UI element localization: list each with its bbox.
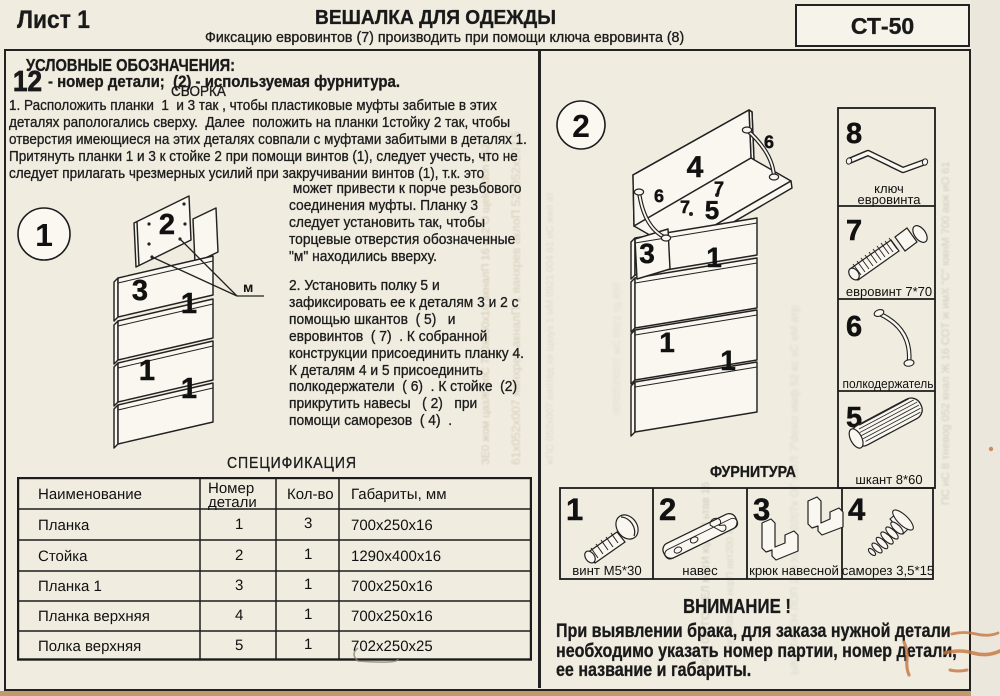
svg-text:Габариты, мм: Габариты, мм: [351, 486, 447, 503]
svg-text:Планка верхняя: Планка верхняя: [38, 608, 150, 625]
svg-text:1: 1: [659, 327, 675, 358]
svg-text:навес: навес: [682, 563, 718, 578]
svg-text:1: 1: [304, 546, 312, 563]
svg-text:5: 5: [705, 195, 719, 225]
svg-text:1: 1: [566, 492, 583, 527]
svg-text:м: м: [243, 279, 253, 295]
svg-text:Стойка: Стойка: [38, 548, 88, 565]
svg-text:евровинт 7*70: евровинт 7*70: [846, 284, 932, 299]
svg-text:1: 1: [139, 355, 155, 387]
svg-text:700х250х16: 700х250х16: [351, 608, 433, 625]
svg-text:1: 1: [235, 516, 243, 533]
svg-text:3: 3: [639, 238, 655, 269]
svg-text:1: 1: [720, 345, 736, 376]
svg-text:1: 1: [706, 242, 722, 273]
svg-text:детали: детали: [208, 494, 257, 511]
svg-text:винт М5*30: винт М5*30: [572, 563, 641, 578]
svg-text:крюк навесной: крюк навесной: [749, 563, 839, 578]
svg-text:700х250х16: 700х250х16: [351, 578, 433, 595]
svg-text:3: 3: [304, 515, 312, 532]
svg-text:Планка 1: Планка 1: [38, 578, 102, 595]
svg-text:Планка: Планка: [38, 517, 90, 534]
svg-text:Наименование: Наименование: [38, 486, 142, 503]
svg-text:3: 3: [132, 275, 148, 307]
svg-text:4: 4: [235, 607, 243, 624]
svg-text:8: 8: [846, 118, 862, 150]
svg-text:1: 1: [304, 636, 312, 653]
svg-text:6: 6: [846, 311, 862, 343]
svg-text:2: 2: [235, 547, 243, 564]
svg-text:1290х400х16: 1290х400х16: [351, 548, 441, 565]
svg-text:Кол-во: Кол-во: [287, 486, 334, 503]
svg-text:1: 1: [304, 606, 312, 623]
svg-text:Полка верхняя: Полка верхняя: [38, 638, 141, 655]
svg-text:3: 3: [235, 577, 243, 594]
svg-text:1: 1: [35, 217, 53, 253]
svg-text:2: 2: [659, 492, 676, 527]
svg-text:1: 1: [304, 576, 312, 593]
svg-text:4: 4: [687, 151, 704, 184]
svg-text:евровинта: евровинта: [858, 192, 922, 207]
svg-text:6: 6: [764, 132, 774, 152]
svg-text:7: 7: [680, 197, 690, 217]
svg-text:1: 1: [181, 373, 197, 405]
svg-text:2: 2: [572, 108, 590, 144]
svg-text:7: 7: [846, 215, 862, 247]
svg-text:2: 2: [159, 209, 175, 241]
svg-text:полкодержатель: полкодержатель: [843, 376, 934, 391]
svg-text:700х250х16: 700х250х16: [351, 517, 433, 534]
svg-text:5: 5: [235, 637, 243, 654]
svg-text:1: 1: [181, 288, 197, 320]
svg-text:6: 6: [654, 186, 664, 206]
